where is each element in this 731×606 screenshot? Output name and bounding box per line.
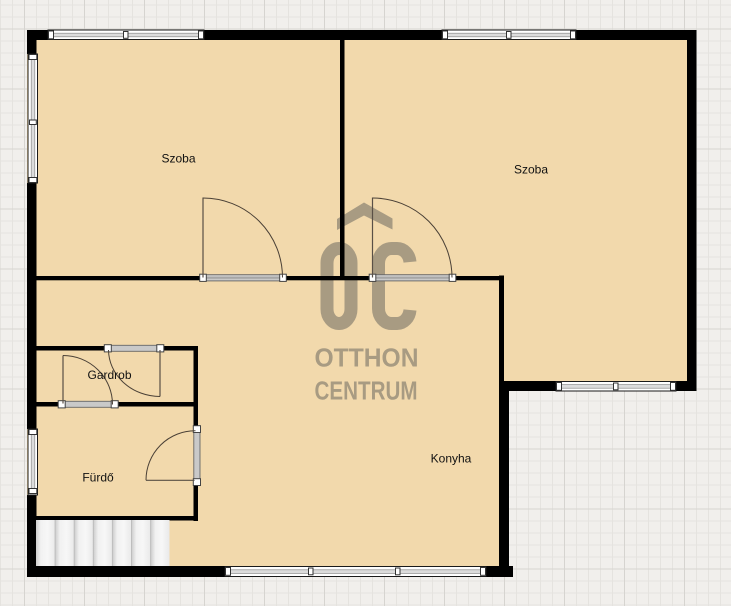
svg-text:CENTRUM: CENTRUM (315, 378, 418, 406)
svg-text:Konyha: Konyha (431, 452, 472, 466)
svg-text:Szoba: Szoba (514, 163, 548, 177)
svg-text:Szoba: Szoba (161, 152, 195, 166)
svg-text:OTTHON: OTTHON (315, 345, 419, 373)
svg-text:Gardrob: Gardrob (87, 368, 131, 382)
svg-text:Fürdő: Fürdő (82, 471, 114, 485)
